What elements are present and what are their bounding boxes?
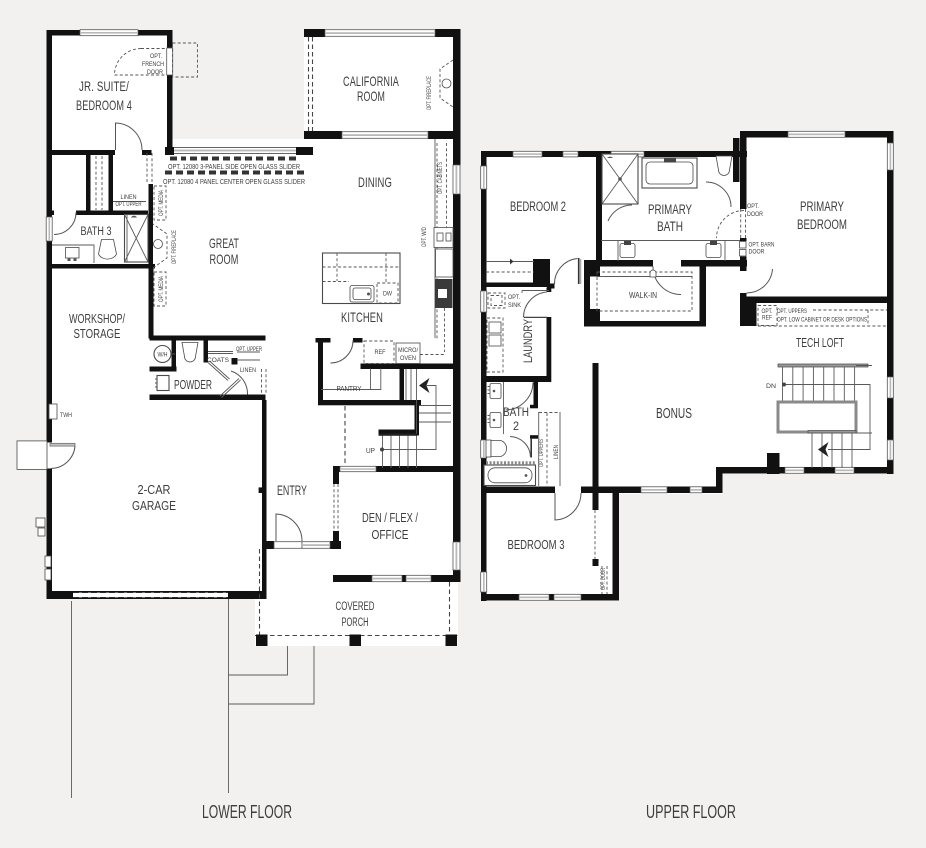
svg-text:KITCHEN: KITCHEN bbox=[341, 309, 383, 325]
svg-text:OPT.: OPT. bbox=[150, 54, 162, 60]
svg-text:DOOR: DOOR bbox=[147, 70, 164, 76]
svg-text:PRIMARY: PRIMARY bbox=[800, 199, 844, 214]
svg-text:OPT.: OPT. bbox=[508, 295, 520, 301]
svg-text:OPT. UPPERS: OPT. UPPERS bbox=[539, 439, 545, 467]
svg-text:OPT. MEDIA: OPT. MEDIA bbox=[159, 190, 165, 216]
svg-text:BEDROOM 2: BEDROOM 2 bbox=[510, 199, 566, 214]
svg-text:OPT. CABINETS: OPT. CABINETS bbox=[438, 162, 444, 194]
svg-text:JR. SUITE/: JR. SUITE/ bbox=[79, 78, 129, 94]
svg-text:2: 2 bbox=[513, 421, 519, 433]
svg-text:BATH: BATH bbox=[503, 407, 529, 419]
svg-text:TECH LOFT: TECH LOFT bbox=[796, 336, 844, 350]
svg-text:DOOR: DOOR bbox=[747, 212, 764, 218]
svg-text:OFFICE: OFFICE bbox=[372, 528, 409, 542]
svg-text:OVEN: OVEN bbox=[400, 356, 416, 362]
svg-text:OPT.: OPT. bbox=[762, 309, 773, 315]
svg-text:BEDROOM: BEDROOM bbox=[797, 217, 847, 232]
svg-text:GREAT: GREAT bbox=[209, 235, 239, 251]
svg-text:DN: DN bbox=[766, 384, 776, 390]
svg-text:LOWER FLOOR: LOWER FLOOR bbox=[202, 801, 292, 822]
svg-text:DW: DW bbox=[383, 292, 392, 298]
svg-text:BEDROOM 4: BEDROOM 4 bbox=[76, 97, 132, 113]
svg-text:UPPER FLOOR: UPPER FLOOR bbox=[646, 801, 736, 822]
svg-text:UP: UP bbox=[366, 448, 375, 455]
svg-text:OPT. UPPER: OPT. UPPER bbox=[236, 347, 262, 353]
svg-text:ROOM: ROOM bbox=[210, 251, 239, 267]
svg-text:BATH 3: BATH 3 bbox=[81, 226, 112, 238]
svg-text:MICRO/: MICRO/ bbox=[398, 348, 418, 354]
svg-text:DINING: DINING bbox=[358, 174, 392, 190]
svg-text:OPT. 12080 3-PANEL SIDE OPEN G: OPT. 12080 3-PANEL SIDE OPEN GLASS SLIDE… bbox=[168, 164, 300, 171]
svg-text:OPT. 12080 4 PANEL CENTER OPEN: OPT. 12080 4 PANEL CENTER OPEN GLASS SLI… bbox=[163, 179, 305, 186]
svg-text:DOOR: DOOR bbox=[749, 250, 766, 256]
svg-text:BEDROOM 3: BEDROOM 3 bbox=[508, 537, 565, 552]
svg-text:OPT. FIREPLACE: OPT. FIREPLACE bbox=[427, 76, 433, 110]
svg-text:PORCH: PORCH bbox=[342, 617, 369, 629]
svg-text:OPT. UPPERS: OPT. UPPERS bbox=[777, 309, 807, 315]
svg-text:BATH: BATH bbox=[657, 219, 683, 234]
svg-text:WORKSHOP/: WORKSHOP/ bbox=[69, 312, 125, 326]
svg-text:PRIMARY: PRIMARY bbox=[648, 202, 692, 217]
svg-text:FRENCH: FRENCH bbox=[142, 62, 164, 68]
svg-text:REF: REF bbox=[762, 316, 772, 322]
svg-text:OPT. FIREPLACE: OPT. FIREPLACE bbox=[172, 230, 178, 264]
svg-text:TWH: TWH bbox=[60, 413, 72, 419]
svg-text:PANTRY: PANTRY bbox=[337, 386, 362, 393]
svg-text:LINEN: LINEN bbox=[554, 445, 560, 459]
svg-text:ENTRY: ENTRY bbox=[277, 483, 307, 498]
svg-text:2-CAR: 2-CAR bbox=[138, 482, 171, 497]
svg-text:WALK-IN: WALK-IN bbox=[629, 290, 657, 300]
svg-text:COATS: COATS bbox=[207, 358, 229, 364]
svg-text:ROOM: ROOM bbox=[357, 88, 385, 104]
svg-text:OPT. UPPER: OPT. UPPER bbox=[116, 202, 142, 208]
svg-text:OPT. MEDIA: OPT. MEDIA bbox=[159, 276, 165, 302]
svg-text:OPT. W/D: OPT. W/D bbox=[422, 227, 428, 247]
svg-text:COVERED: COVERED bbox=[336, 601, 375, 613]
svg-text:DEN / FLEX /: DEN / FLEX / bbox=[362, 511, 418, 525]
svg-text:W/H: W/H bbox=[158, 353, 168, 359]
svg-text:LINEN: LINEN bbox=[121, 195, 137, 201]
svg-text:OPT. DOOR: OPT. DOOR bbox=[601, 568, 607, 590]
svg-text:LINEN: LINEN bbox=[240, 368, 256, 374]
svg-text:STORAGE: STORAGE bbox=[74, 327, 121, 341]
svg-text:OPT. LOW CABINET OR DESK OPTIO: OPT. LOW CABINET OR DESK OPTIONS bbox=[777, 318, 867, 324]
svg-text:POWDER: POWDER bbox=[174, 378, 212, 392]
svg-text:BONUS: BONUS bbox=[656, 406, 692, 422]
svg-text:OPT. BARN: OPT. BARN bbox=[749, 243, 775, 249]
svg-text:OPT.: OPT. bbox=[747, 204, 759, 210]
svg-text:SINK: SINK bbox=[508, 303, 521, 309]
svg-text:CALIFORNIA: CALIFORNIA bbox=[343, 73, 399, 89]
svg-text:LAUNDRY: LAUNDRY bbox=[523, 319, 535, 363]
svg-text:REF: REF bbox=[375, 350, 386, 356]
svg-text:GARAGE: GARAGE bbox=[132, 498, 176, 513]
